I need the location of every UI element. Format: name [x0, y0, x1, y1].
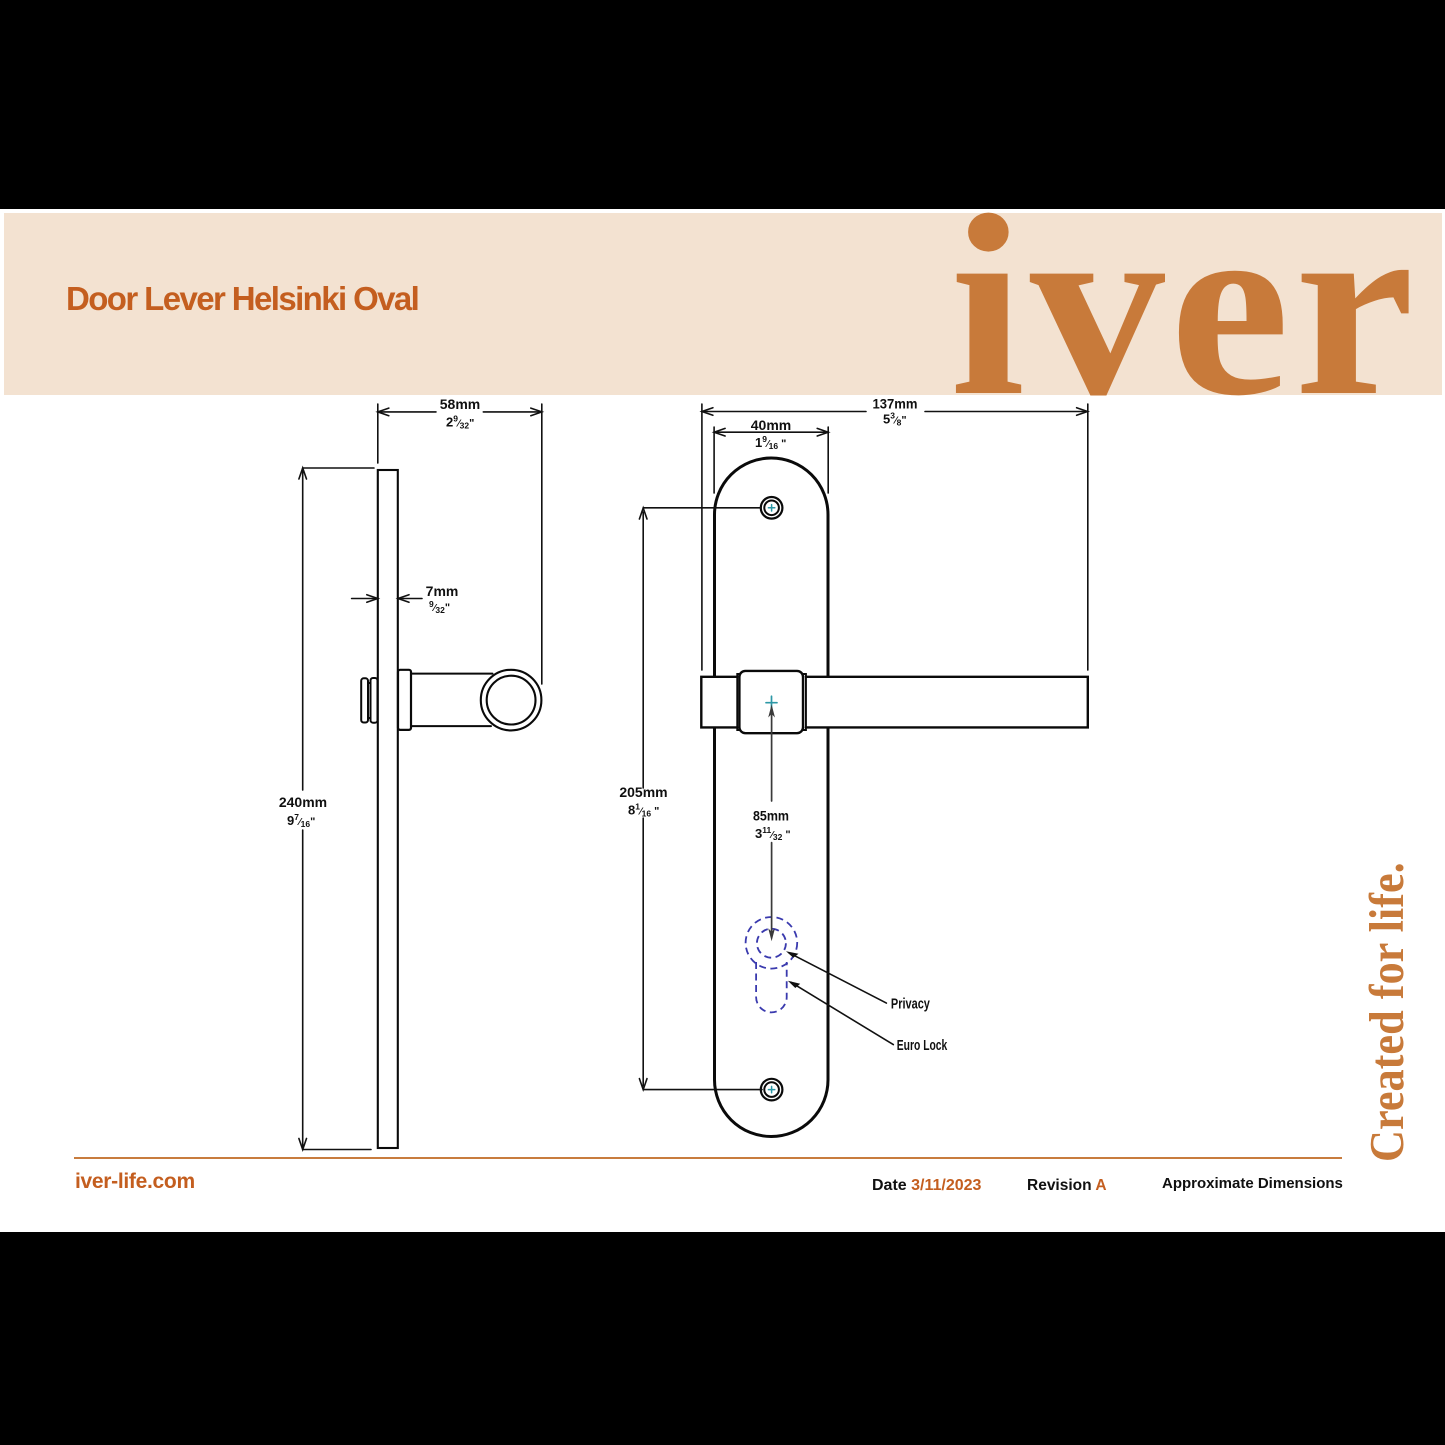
svg-text:29⁄32": 29⁄32" — [446, 414, 474, 431]
svg-text:240mm: 240mm — [279, 794, 327, 810]
svg-text:9⁄32": 9⁄32" — [429, 599, 450, 615]
svg-text:40mm: 40mm — [751, 417, 791, 433]
svg-text:97⁄16": 97⁄16" — [287, 812, 315, 829]
svg-text:53⁄8": 53⁄8" — [883, 411, 907, 428]
svg-text:85mm: 85mm — [753, 807, 789, 823]
svg-text:7mm: 7mm — [426, 583, 459, 599]
svg-text:19⁄16 ": 19⁄16 " — [755, 434, 786, 451]
svg-text:Euro Lock: Euro Lock — [897, 1038, 948, 1054]
svg-text:137mm: 137mm — [873, 396, 918, 412]
svg-text:205mm: 205mm — [619, 784, 667, 800]
svg-text:81⁄16 ": 81⁄16 " — [628, 802, 659, 819]
svg-text:311⁄32 ": 311⁄32 " — [755, 825, 791, 842]
svg-text:58mm: 58mm — [440, 396, 480, 412]
svg-text:Privacy: Privacy — [891, 996, 930, 1012]
